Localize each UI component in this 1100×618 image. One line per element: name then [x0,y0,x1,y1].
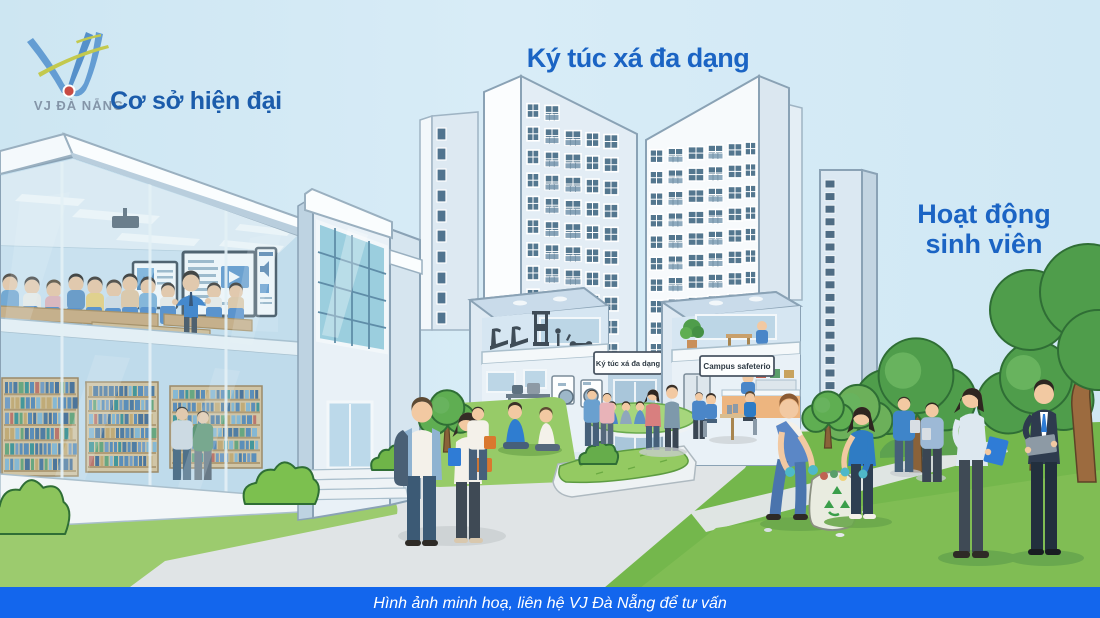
svg-text:Campus safeterio: Campus safeterio [703,362,770,371]
svg-text:Hình ảnh minh hoạ, liên hệ VJ: Hình ảnh minh hoạ, liên hệ VJ Đà Nẵng để… [373,593,727,612]
svg-text:Hoạt động: Hoạt động [917,199,1050,229]
svg-text:sinh viên: sinh viên [925,229,1042,259]
svg-text:Cơ sở hiện đại: Cơ sở hiện đại [110,87,282,115]
svg-text:Ký túc xá đa dạng: Ký túc xá đa dạng [596,359,661,368]
svg-text:Ký túc xá đa dạng: Ký túc xá đa dạng [527,43,750,73]
